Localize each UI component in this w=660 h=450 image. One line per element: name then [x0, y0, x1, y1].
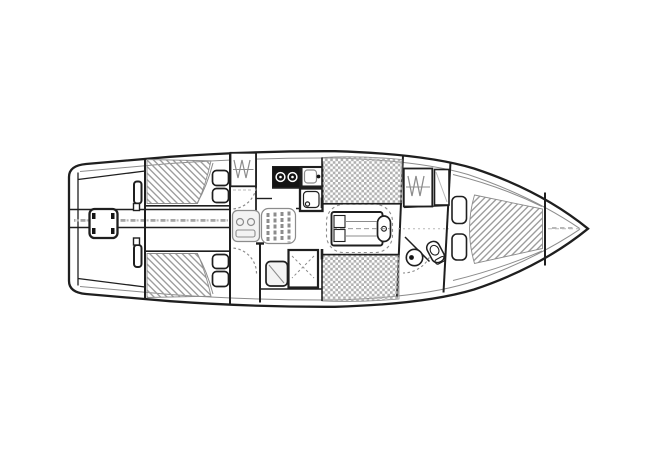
door-swing-arc — [231, 184, 257, 210]
hatch-hinge — [92, 228, 96, 234]
berth-mattress-port — [147, 160, 211, 204]
pillow — [452, 197, 467, 224]
burner-center — [291, 176, 294, 179]
pillow — [213, 171, 229, 186]
yacht-interior-plan — [0, 0, 660, 450]
hinge-block — [134, 204, 140, 211]
door-swing-arc — [231, 248, 257, 274]
cleat-bar-starboard — [134, 245, 142, 267]
salon-group — [322, 157, 402, 302]
aft-cabin-starboard — [145, 251, 230, 297]
sink-drain — [409, 255, 414, 260]
settee-port-cushion — [322, 157, 402, 204]
galley-group — [256, 164, 323, 212]
chart-table — [289, 250, 319, 288]
pillow — [213, 272, 229, 287]
nav-station-group — [256, 244, 322, 290]
hatch-hinge — [111, 228, 115, 234]
cleat-bar-port — [134, 182, 142, 204]
burner-center — [279, 176, 282, 179]
forward-lockers-group — [404, 169, 449, 208]
hanging-locker-aft — [231, 153, 257, 190]
aft-cabin-port — [145, 160, 230, 206]
hatch-hinge — [111, 213, 115, 219]
plan-canvas — [0, 0, 660, 450]
vberth-mattress — [470, 195, 543, 264]
engine-steps-group — [231, 184, 296, 274]
cockpit-bench-edge-port — [78, 171, 145, 180]
screenshot-root — [0, 0, 660, 450]
pillow — [452, 234, 467, 260]
hatch-hinge — [92, 213, 96, 219]
hinge-block — [134, 238, 140, 245]
head-sink — [406, 249, 422, 265]
berth-mattress-starboard — [147, 254, 211, 298]
toilet — [425, 239, 447, 265]
pillow — [213, 189, 229, 203]
cockpit-bench-edge-starboard — [78, 279, 145, 288]
settee-starboard-cushion — [322, 255, 399, 301]
head-group — [398, 229, 449, 273]
faucet — [317, 175, 321, 179]
pillow — [213, 255, 229, 269]
bow-micro-marks — [549, 224, 575, 232]
